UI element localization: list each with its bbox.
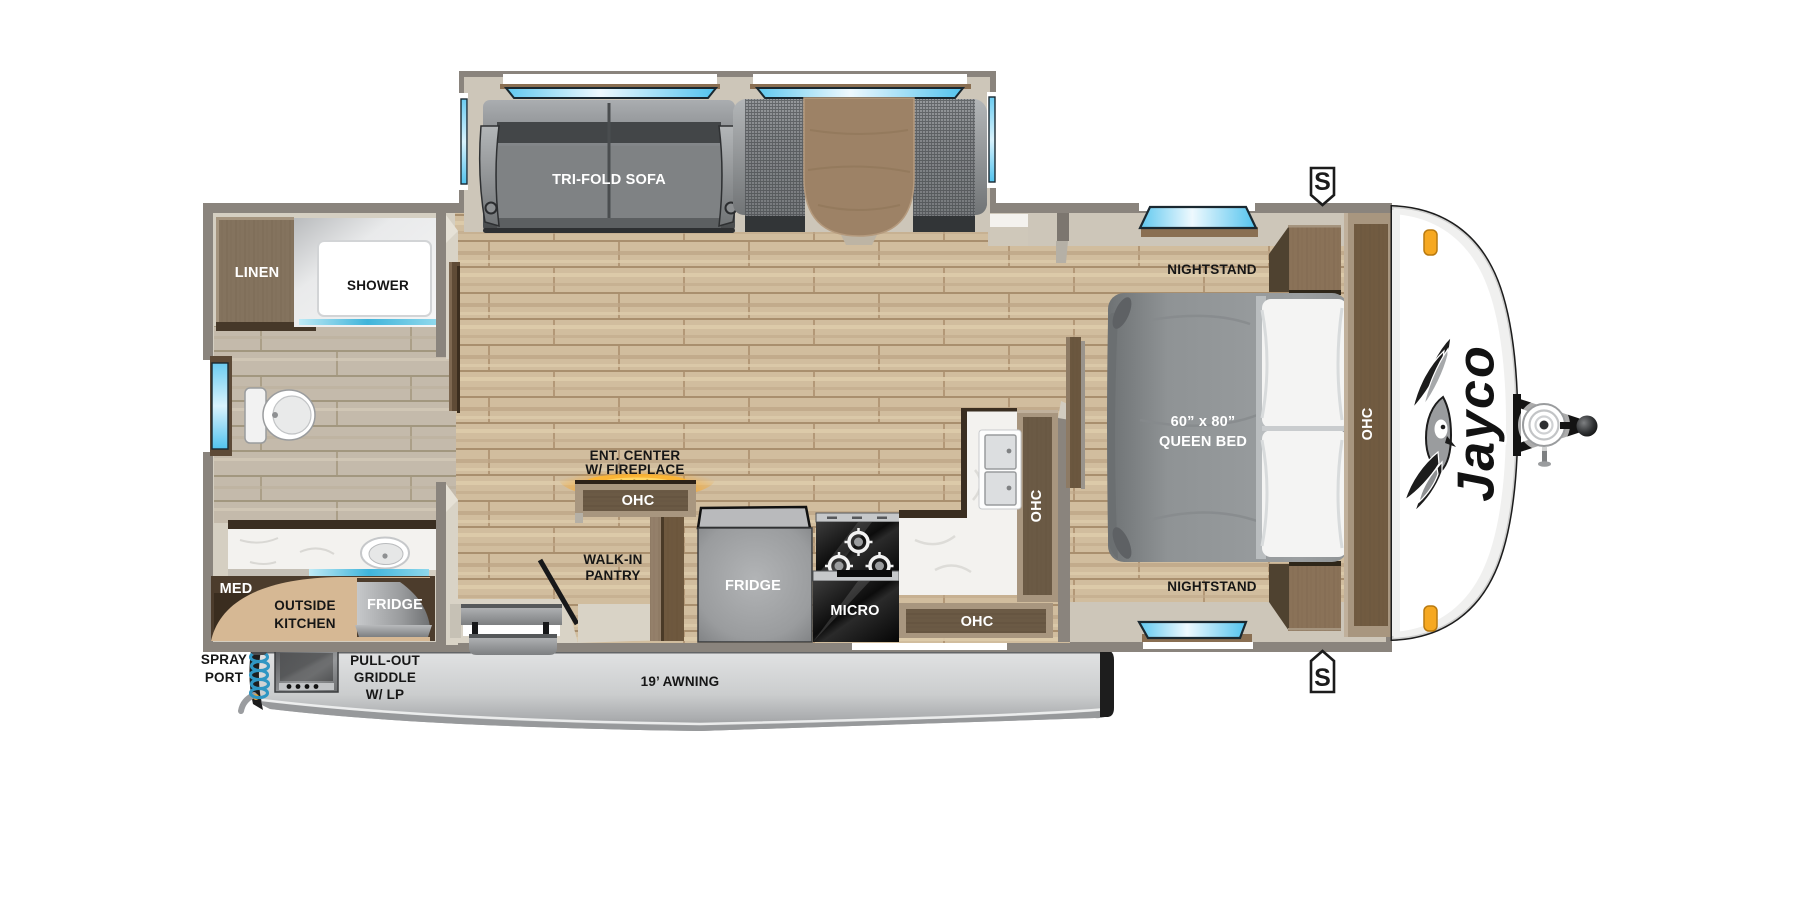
svg-text:FRIDGE: FRIDGE: [367, 597, 423, 613]
svg-text:OHC: OHC: [1360, 407, 1376, 440]
svg-text:OHC: OHC: [622, 493, 655, 509]
svg-text:S: S: [1314, 664, 1331, 692]
svg-text:SPRAY: SPRAY: [201, 652, 247, 667]
svg-text:TRI-FOLD SOFA: TRI-FOLD SOFA: [552, 172, 666, 188]
svg-text:OUTSIDE: OUTSIDE: [274, 598, 335, 613]
svg-text:GRIDDLE: GRIDDLE: [354, 670, 416, 685]
svg-text:FRIDGE: FRIDGE: [725, 578, 781, 594]
svg-text:PANTRY: PANTRY: [585, 568, 640, 583]
svg-text:SHOWER: SHOWER: [347, 278, 409, 293]
svg-text:NIGHTSTAND: NIGHTSTAND: [1167, 262, 1257, 277]
svg-text:W/ LP: W/ LP: [366, 687, 405, 702]
svg-text:OHC: OHC: [961, 614, 994, 630]
svg-text:MICRO: MICRO: [830, 603, 879, 619]
svg-text:Jayco: Jayco: [1448, 344, 1506, 501]
svg-text:W/ FIREPLACE: W/ FIREPLACE: [585, 462, 684, 477]
svg-text:QUEEN BED: QUEEN BED: [1159, 434, 1247, 450]
svg-text:KITCHEN: KITCHEN: [274, 616, 335, 631]
svg-text:OHC: OHC: [1029, 489, 1045, 522]
svg-text:19’ AWNING: 19’ AWNING: [641, 674, 720, 689]
svg-text:S: S: [1314, 168, 1331, 196]
svg-text:NIGHTSTAND: NIGHTSTAND: [1167, 579, 1257, 594]
svg-text:ENT. CENTER: ENT. CENTER: [590, 448, 681, 463]
svg-text:LINEN: LINEN: [235, 265, 280, 281]
svg-text:PORT: PORT: [205, 670, 244, 685]
svg-text:WALK-IN: WALK-IN: [583, 552, 642, 567]
svg-text:60” x 80”: 60” x 80”: [1171, 414, 1236, 430]
svg-text:MED: MED: [220, 581, 253, 597]
svg-text:PULL-OUT: PULL-OUT: [350, 653, 420, 668]
